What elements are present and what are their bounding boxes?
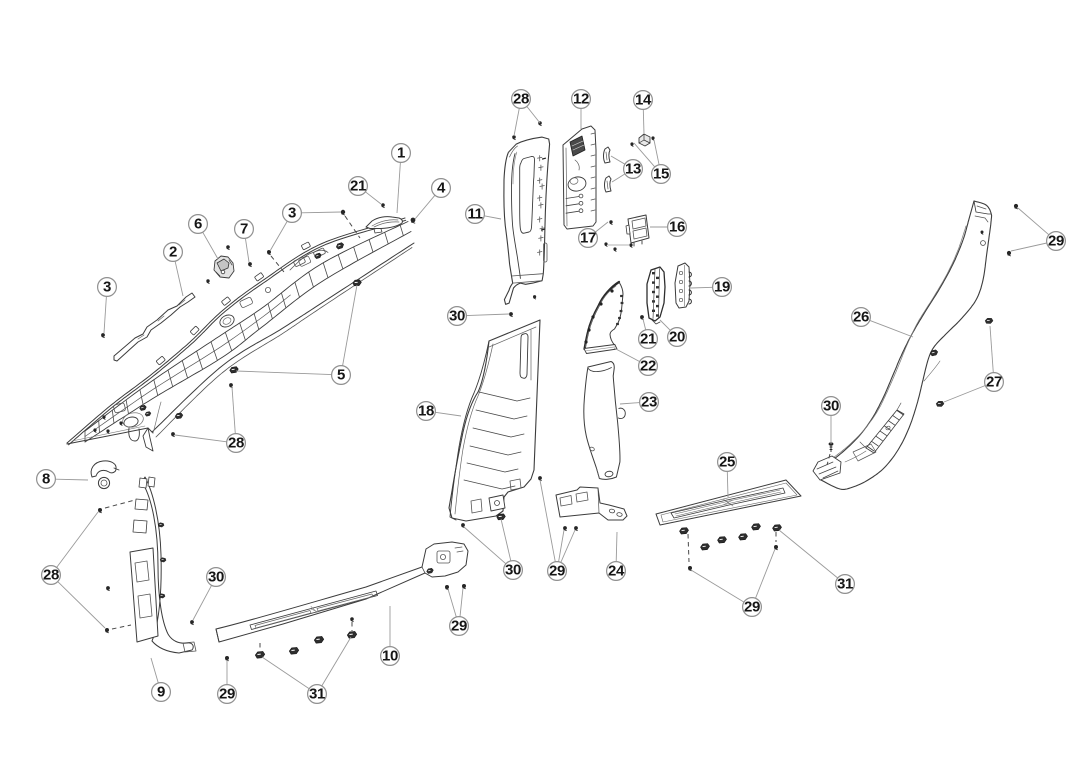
svg-text:8: 8	[42, 470, 50, 487]
svg-text:15: 15	[653, 165, 669, 182]
svg-text:7: 7	[240, 220, 248, 237]
svg-text:27: 27	[986, 373, 1002, 390]
svg-text:28: 28	[513, 90, 529, 107]
svg-text:29: 29	[744, 598, 760, 615]
svg-text:4: 4	[437, 179, 446, 196]
svg-text:31: 31	[309, 685, 325, 702]
svg-text:18: 18	[418, 402, 434, 419]
svg-text:10: 10	[382, 647, 398, 664]
svg-text:17: 17	[580, 229, 596, 246]
svg-text:24: 24	[608, 562, 625, 579]
svg-text:25: 25	[719, 453, 735, 470]
svg-text:30: 30	[823, 397, 839, 414]
svg-text:28: 28	[228, 434, 244, 451]
svg-text:2: 2	[169, 243, 177, 260]
svg-text:11: 11	[467, 205, 482, 222]
svg-text:5: 5	[337, 366, 345, 383]
svg-text:3: 3	[288, 204, 296, 221]
svg-text:23: 23	[641, 393, 657, 410]
svg-text:22: 22	[640, 357, 656, 374]
svg-text:29: 29	[219, 685, 235, 702]
svg-text:21: 21	[350, 177, 366, 194]
svg-text:29: 29	[1048, 232, 1064, 249]
svg-text:9: 9	[157, 683, 165, 700]
svg-text:30: 30	[449, 307, 465, 324]
svg-text:30: 30	[505, 561, 521, 578]
svg-text:20: 20	[669, 328, 685, 345]
svg-text:21: 21	[640, 330, 656, 347]
svg-text:13: 13	[625, 160, 641, 177]
svg-text:19: 19	[714, 278, 730, 295]
svg-text:28: 28	[43, 566, 59, 583]
svg-text:16: 16	[669, 218, 685, 235]
svg-text:29: 29	[549, 562, 565, 579]
svg-text:30: 30	[208, 568, 224, 585]
svg-text:3: 3	[103, 278, 111, 295]
svg-text:26: 26	[853, 308, 869, 325]
svg-text:1: 1	[397, 144, 405, 161]
svg-text:6: 6	[194, 215, 202, 232]
svg-text:29: 29	[451, 617, 467, 634]
svg-text:14: 14	[635, 91, 652, 108]
svg-text:12: 12	[573, 90, 589, 107]
svg-text:31: 31	[837, 575, 853, 592]
